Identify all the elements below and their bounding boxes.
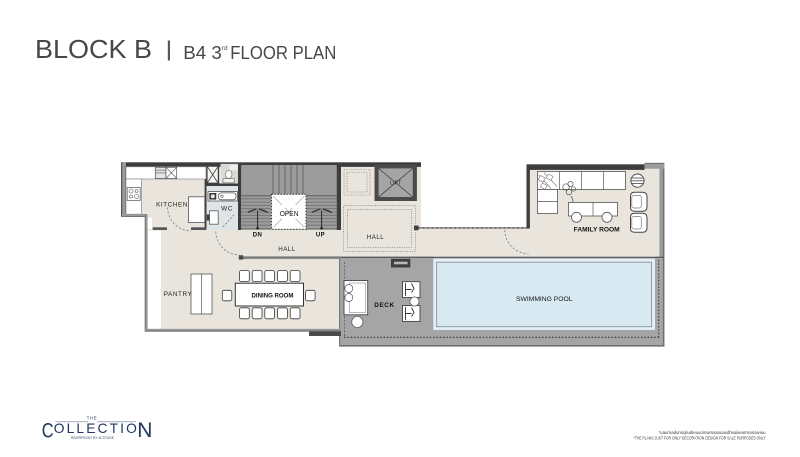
svg-text:rd: rd — [222, 45, 228, 52]
svg-text:RIVERFRONT BY ALTITUDE: RIVERFRONT BY ALTITUDE — [71, 436, 115, 440]
svg-text:C: C — [42, 419, 54, 443]
svg-text:KITCHEN: KITCHEN — [156, 201, 188, 208]
svg-text:LIFT: LIFT — [390, 181, 401, 187]
svg-text:FAMILY ROOM: FAMILY ROOM — [574, 226, 620, 233]
svg-text:DINING ROOM: DINING ROOM — [252, 292, 294, 299]
svg-text:THE: THE — [87, 415, 97, 420]
svg-text:OPEN: OPEN — [280, 209, 299, 218]
svg-text:N: N — [137, 419, 152, 442]
svg-text:*THE PLANS JUST FOR ONLY DECOR: *THE PLANS JUST FOR ONLY DECORATION DESI… — [634, 435, 766, 440]
svg-text:FLOOR PLAN: FLOOR PLAN — [230, 42, 336, 63]
svg-text:B4 3: B4 3 — [183, 42, 222, 63]
svg-text:DECK: DECK — [374, 302, 395, 309]
svg-text:PANTRY: PANTRY — [164, 291, 193, 298]
svg-text:UP: UP — [316, 233, 325, 239]
svg-text:WC: WC — [221, 206, 233, 213]
svg-text:DN: DN — [253, 233, 262, 239]
svg-text:SWIMMING POOL: SWIMMING POOL — [516, 296, 573, 303]
svg-text:HALL: HALL — [367, 234, 385, 241]
svg-text:BLOCK B: BLOCK B — [35, 36, 152, 64]
svg-text:HALL: HALL — [278, 246, 296, 253]
svg-text:OLLECTIO: OLLECTIO — [54, 421, 137, 436]
svg-text:*uaurnadunnqiiudieuuomwmsanuas: *uaurnadunnqiiudieuuomwmsanuasdhsuiiieam… — [659, 430, 767, 435]
